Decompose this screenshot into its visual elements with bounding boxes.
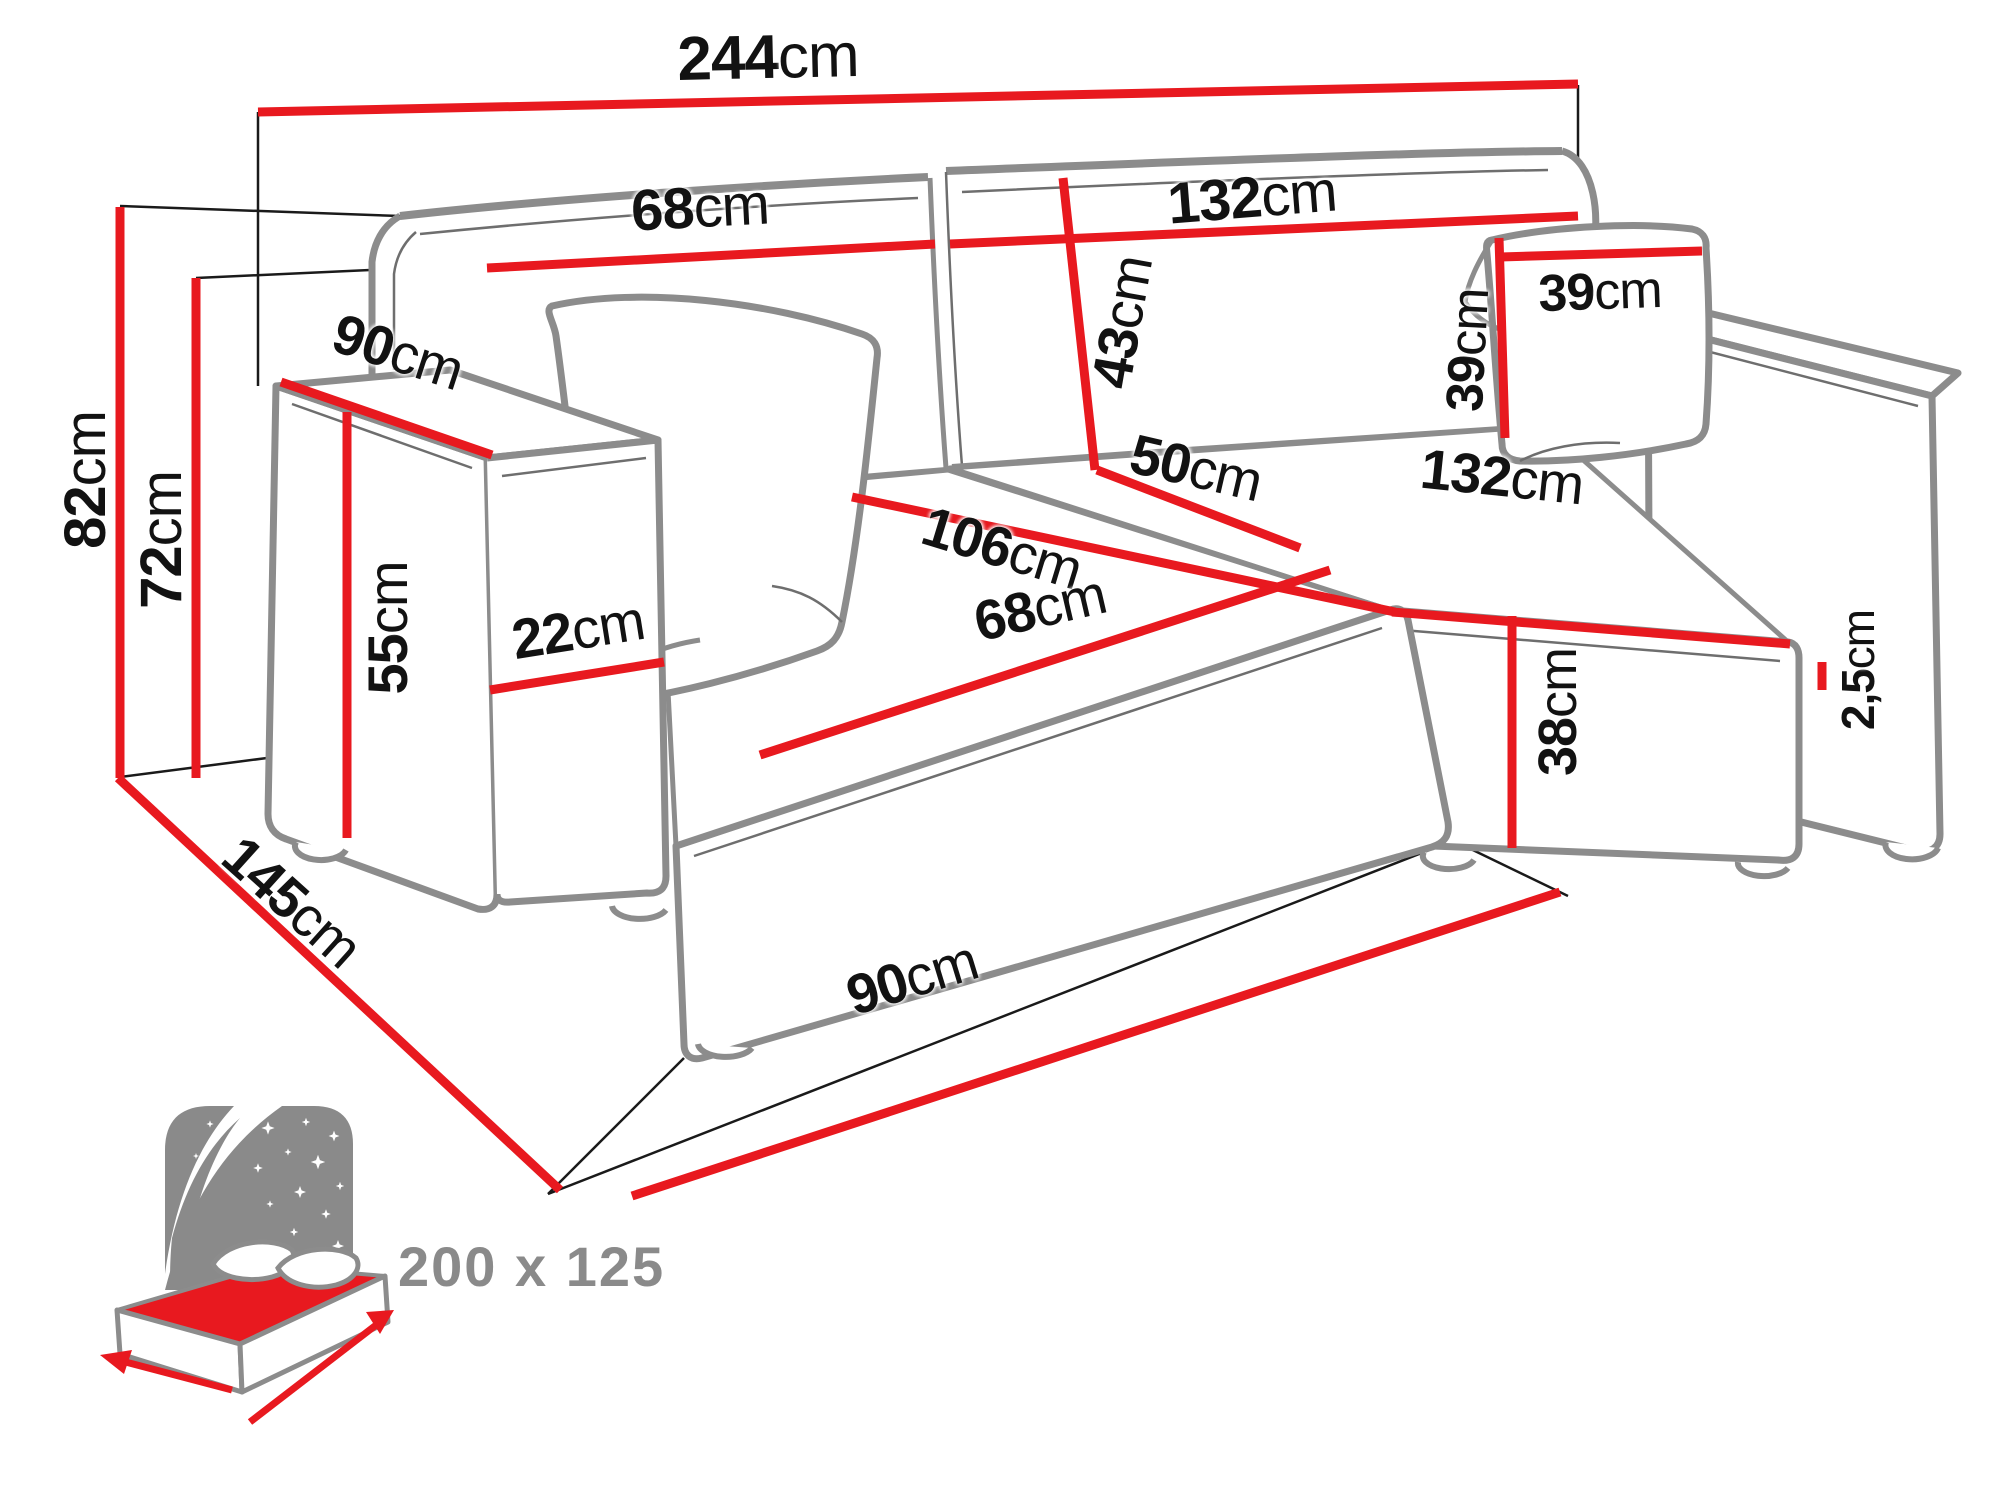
dimension-label-total-width: 244cm	[677, 25, 859, 91]
sleeping-function-icon	[100, 1106, 394, 1422]
dimension-label-total-height: 82cm	[57, 411, 115, 549]
dimension-line-pillow-width	[1500, 251, 1702, 257]
diagram-canvas: 244cm 68cm 132cm 43cm 39cm 39cm 90cm 82c…	[0, 0, 2000, 1500]
sofa-dimension-drawing	[0, 0, 2000, 1500]
dimension-label-pillow-height: 39cm	[1439, 287, 1497, 413]
dimension-label-pillow-width: 39cm	[1538, 264, 1663, 320]
dimension-label-backrest-right-width: 132cm	[1165, 162, 1338, 233]
dimension-label-seat-front-height: 38cm	[1531, 648, 1585, 776]
dimension-line-pillow-height	[1499, 238, 1505, 438]
dimension-line-total-width	[258, 84, 1578, 112]
sleeping-area-size-label: 200 x 125	[398, 1234, 665, 1299]
bed-icon	[100, 1242, 394, 1422]
dimension-label-back-frame-height: 72cm	[133, 471, 191, 609]
dimension-label-armrest-height: 55cm	[360, 562, 416, 695]
dimension-label-leg-height: 2,5cm	[1835, 610, 1881, 730]
dimension-label-backrest-left-width: 68cm	[630, 175, 771, 240]
